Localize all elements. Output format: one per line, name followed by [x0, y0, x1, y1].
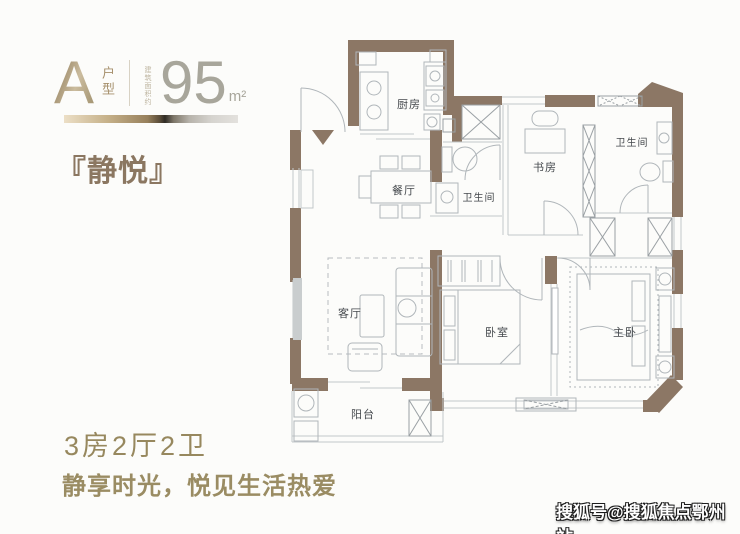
floorplan-page: A 户型 建筑面积约 95 m² 『静悦』	[0, 0, 740, 534]
balcony-fixtures	[294, 389, 318, 441]
study-furniture	[525, 111, 565, 153]
room-label-bedroom: 卧室	[485, 325, 509, 339]
bath-top-right-fixtures	[640, 122, 673, 182]
room-label-master: 主卧	[613, 326, 637, 339]
room-label-dining: 餐厅	[392, 183, 416, 197]
living-furniture	[293, 258, 432, 371]
room-labels: 厨房 餐厅 卫生间 书房 卫生间 客厅 卧室 主卧 阳台	[338, 98, 649, 421]
bedroom-furniture	[438, 256, 520, 364]
kitchen-fixtures	[356, 50, 455, 132]
tv-icon	[293, 278, 302, 340]
room-label-study: 书房	[533, 161, 557, 174]
room-label-bath-top-right: 卫生间	[616, 136, 649, 149]
tagline: 静享时光，悦见生活热爱	[62, 466, 337, 501]
room-label-bath-middle: 卫生间	[463, 191, 496, 204]
room-label-living: 客厅	[338, 306, 362, 320]
room-label-kitchen: 厨房	[397, 98, 421, 111]
entry-arrow-icon	[312, 130, 334, 145]
watermark: 搜狐号@搜狐焦点鄂州站	[556, 498, 740, 534]
layout-summary: 3房2厅2卫	[64, 424, 208, 463]
room-label-balcony: 阳台	[351, 407, 375, 421]
